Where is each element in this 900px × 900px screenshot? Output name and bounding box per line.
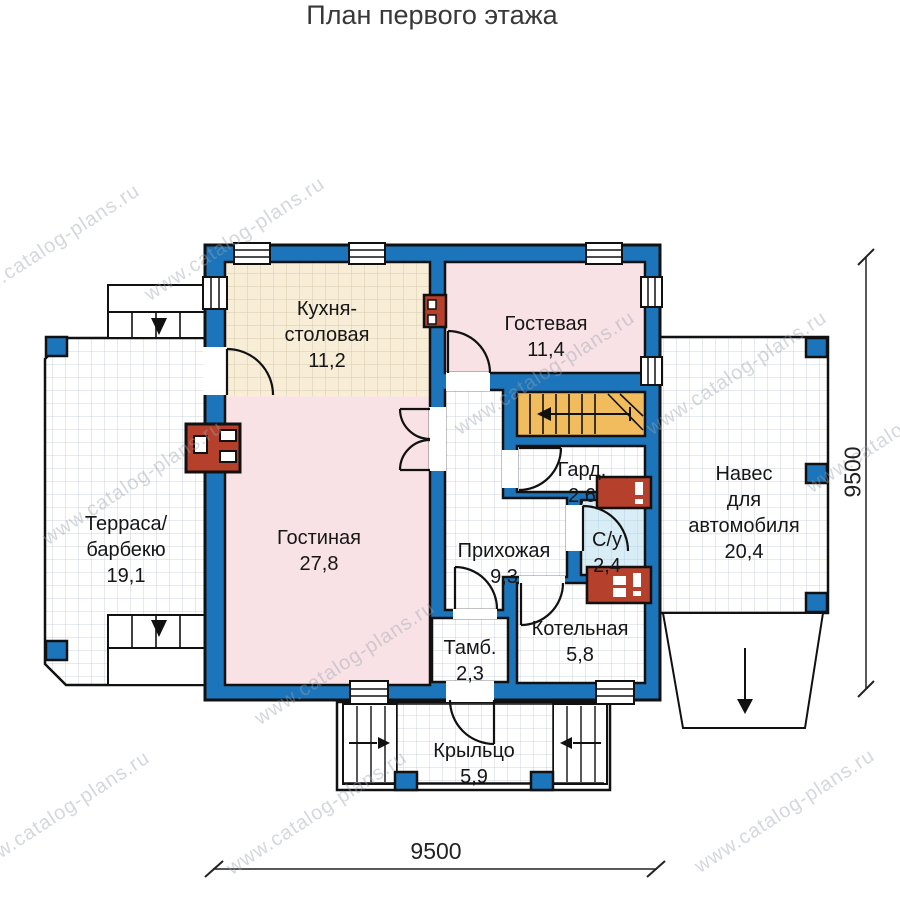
room-label-boiler: Котельная5,8 <box>532 590 629 668</box>
room-label-hallway: Прихожая9,3 <box>458 512 551 590</box>
room-label-porch: Крыльцо5,9 <box>433 712 515 790</box>
terrace-post <box>46 337 67 356</box>
floor-plan-page: План первого этажа www.catalog-plans.ru … <box>0 0 900 900</box>
window-icon <box>586 243 622 264</box>
room-label-guest: Гостевая11,4 <box>504 285 587 363</box>
porch-post <box>531 772 553 790</box>
driveway <box>663 613 823 728</box>
room-label-bathroom: С/у2,4 <box>592 501 622 579</box>
room-label-wardrobe: Гард.2,6 <box>558 431 607 509</box>
terrace-bottom-landing <box>108 648 206 685</box>
porch-post <box>395 772 417 790</box>
window-icon <box>350 681 388 704</box>
window-icon <box>641 357 662 385</box>
room-label-kitchen: Кухня- столовая11,2 <box>285 270 370 374</box>
terrace-post <box>46 641 67 660</box>
carport-post <box>806 593 827 612</box>
room-label-carport: Навес для автомобиля20,4 <box>688 435 799 565</box>
room-label-vestibule: Тамб.2,3 <box>444 609 497 687</box>
window-icon <box>596 681 634 704</box>
window-icon <box>349 243 385 264</box>
room-label-living: Гостиная27,8 <box>277 499 361 577</box>
room-label-terrace: Терраса/ барбекю19,1 <box>85 485 167 589</box>
dimension-right: 9500 <box>840 446 867 497</box>
page-title: План первого этажа <box>306 0 557 31</box>
chimney-icon <box>424 295 446 327</box>
carport-post <box>806 338 827 357</box>
window-icon <box>203 277 227 309</box>
window-icon <box>641 277 662 307</box>
dimension-bottom: 9500 <box>410 838 461 865</box>
